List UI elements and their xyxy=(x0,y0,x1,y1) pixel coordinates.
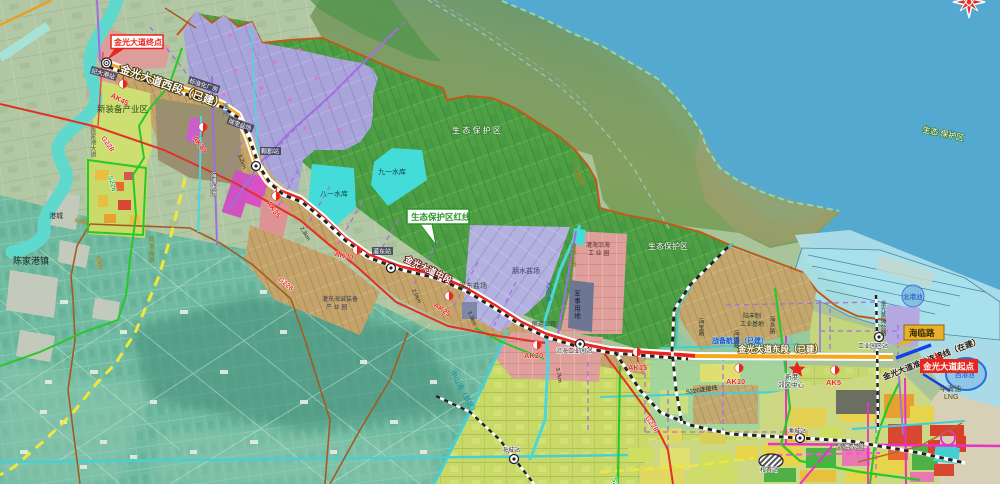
svg-text:金光黄海公路: 金光黄海公路 xyxy=(879,299,886,337)
svg-text:工业基地: 工业基地 xyxy=(740,320,764,328)
svg-text:AK20: AK20 xyxy=(524,351,543,360)
svg-text:海宝路: 海宝路 xyxy=(697,317,704,337)
svg-text:灌东海诚装备: 灌东海诚装备 xyxy=(322,295,358,303)
svg-text:金光大道东段（已建）: 金光大道东段（已建） xyxy=(737,344,823,354)
svg-text:中海油: 中海油 xyxy=(940,384,961,393)
svg-text:海乡路: 海乡路 xyxy=(768,315,775,335)
svg-text:颗郡站: 颗郡站 xyxy=(261,148,279,156)
svg-text:航运公司: 航运公司 xyxy=(532,320,556,328)
svg-text:AK15: AK15 xyxy=(628,363,647,372)
svg-text:海城站: 海城站 xyxy=(502,446,520,454)
svg-text:疏港大道: 疏港大道 xyxy=(569,242,576,268)
svg-text:陆丰制: 陆丰制 xyxy=(743,312,761,320)
svg-text:生态保护区: 生态保护区 xyxy=(648,241,688,251)
svg-text:沿海工业园站: 沿海工业园站 xyxy=(556,347,592,355)
svg-text:北港池: 北港池 xyxy=(903,292,923,301)
svg-text:灌东盐场: 灌东盐场 xyxy=(459,281,487,290)
svg-text:陈家港大道: 陈家港大道 xyxy=(89,126,96,158)
svg-text:灌东站: 灌东站 xyxy=(373,248,391,256)
svg-text:权置站: 权置站 xyxy=(760,466,778,474)
svg-text:AK5: AK5 xyxy=(826,378,841,387)
svg-text:港城: 港城 xyxy=(49,211,63,220)
svg-text:XXE-B: XXE-B xyxy=(545,282,552,302)
svg-text:观海大道: 观海大道 xyxy=(836,442,864,451)
svg-text:灌海沿海: 灌海沿海 xyxy=(586,241,610,249)
svg-text:疏港海道: 疏港海道 xyxy=(147,235,154,264)
svg-text:AK10: AK10 xyxy=(726,377,745,386)
svg-text:海通大道: 海通大道 xyxy=(209,171,216,197)
svg-text:海城路: 海城路 xyxy=(732,329,739,349)
svg-text:生态保护区红线: 生态保护区红线 xyxy=(411,212,471,222)
svg-text:新装备产业区: 新装备产业区 xyxy=(97,104,149,114)
svg-text:工 业 园: 工 业 园 xyxy=(588,249,609,257)
svg-text:新港: 新港 xyxy=(785,372,799,381)
svg-text:产 业 园: 产 业 园 xyxy=(326,303,347,311)
svg-text:生 态 保 护 区: 生 态 保 护 区 xyxy=(452,125,501,135)
svg-text:海临路: 海临路 xyxy=(909,328,935,338)
svg-text:LNG: LNG xyxy=(944,394,958,401)
svg-text:郊区中心: 郊区中心 xyxy=(778,380,805,389)
svg-text:朋水盐场: 朋水盐场 xyxy=(512,266,540,275)
svg-text:工业园区站: 工业园区站 xyxy=(858,342,888,350)
svg-text:金光大道起点: 金光大道起点 xyxy=(922,362,975,372)
svg-text:渔城站: 渔城站 xyxy=(788,427,806,435)
svg-text:陈家港镇: 陈家港镇 xyxy=(13,255,49,266)
svg-text:八一水库: 八一水库 xyxy=(320,189,348,198)
svg-text:九一水库: 九一水库 xyxy=(378,167,406,176)
svg-text:金光大道终点: 金光大道终点 xyxy=(113,37,162,47)
